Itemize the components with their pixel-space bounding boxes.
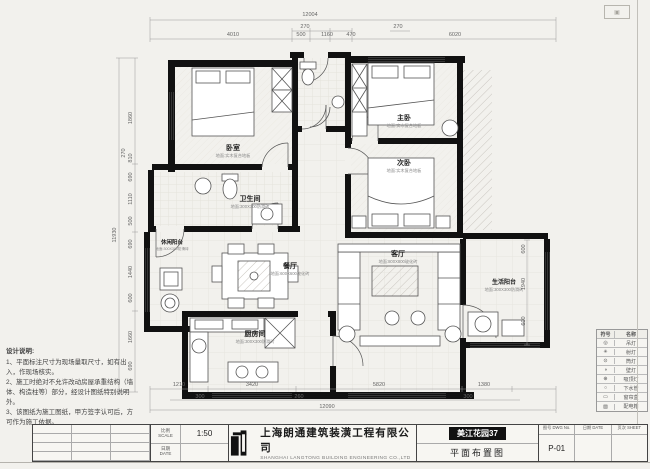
company-name-cn: 上海朗通建筑装潢工程有限公司 bbox=[260, 425, 416, 455]
corner-stamp: ▣ bbox=[604, 5, 630, 19]
legend-row: ⊙筒灯 bbox=[597, 357, 647, 366]
svg-text:470: 470 bbox=[346, 32, 355, 38]
legend-row: ○下水管 bbox=[597, 384, 647, 393]
drawing-sheet: 卧室 地面:实木复合地板 主卧 地面:实木复合地板 次卧 地面:实木复合地板 卫… bbox=[0, 0, 650, 469]
legend-symbol-icon: ⊙ bbox=[597, 358, 615, 364]
dwgno-label-cn: 图号 bbox=[543, 425, 551, 430]
sheet-label-cn: 页次 bbox=[618, 425, 626, 430]
svg-text:地面:300X300防滑砖: 地面:300X300防滑砖 bbox=[231, 203, 270, 210]
svg-text:地面:300X300防滑砖: 地面:300X300防滑砖 bbox=[485, 286, 524, 293]
svg-text:600: 600 bbox=[521, 244, 527, 253]
svg-text:300: 300 bbox=[463, 394, 472, 400]
svg-text:地面:300X300防滑砖: 地面:300X300防滑砖 bbox=[236, 338, 275, 345]
room-label-dining: 餐厅 bbox=[282, 261, 297, 270]
svg-text:270: 270 bbox=[393, 24, 402, 30]
dwgno-label-en: DWG No. bbox=[552, 425, 570, 430]
company-name-en: SHANGHAI LANGTONG BUILDING ENGINEERING C… bbox=[260, 456, 416, 461]
room-label-service: 生活阳台 bbox=[492, 278, 516, 286]
svg-text:5820: 5820 bbox=[373, 382, 385, 388]
design-notes-title: 设计说明: bbox=[6, 347, 134, 357]
legend-row: ⊕吸顶灯 bbox=[597, 375, 647, 384]
legend-row: ▨配电箱 bbox=[597, 402, 647, 411]
sheet-edge-line bbox=[637, 0, 638, 424]
dim-left-overall: 11930 bbox=[112, 228, 118, 243]
legend-symbol-icon: ○ bbox=[597, 385, 615, 391]
drawing-title: 平面布置图 bbox=[417, 444, 538, 462]
bed-bedroom bbox=[192, 68, 254, 136]
exterior-hatch bbox=[463, 70, 492, 230]
dim-top-overall: 12004 bbox=[302, 12, 317, 18]
room-label-second: 次卧 bbox=[397, 158, 411, 167]
svg-text:810: 810 bbox=[128, 153, 134, 162]
svg-text:6020: 6020 bbox=[449, 32, 461, 38]
svg-text:1440: 1440 bbox=[128, 266, 134, 278]
svg-text:260: 260 bbox=[294, 394, 303, 400]
svg-text:1860: 1860 bbox=[128, 112, 134, 124]
legend-symbol-icon: ⊕ bbox=[597, 376, 615, 382]
svg-text:地面:800X800玻化砖: 地面:800X800玻化砖 bbox=[379, 258, 418, 265]
svg-text:1160: 1160 bbox=[321, 32, 333, 38]
wardrobe-master bbox=[352, 64, 367, 136]
room-label-bath: 卫生间 bbox=[240, 194, 261, 203]
date-label-en: DATE bbox=[151, 452, 180, 457]
svg-text:1210: 1210 bbox=[173, 382, 185, 388]
design-note-line: 1、平面标注尺寸为现场量取尺寸，如有出入，作现场核实。 bbox=[6, 358, 134, 378]
svg-text:690: 690 bbox=[128, 172, 134, 181]
svg-text:地面:600X600玻化砖: 地面:600X600玻化砖 bbox=[271, 270, 310, 277]
scale-section: 比例 SCALE 1:50 日期 DATE bbox=[151, 425, 229, 461]
company-logo-icon bbox=[229, 430, 252, 456]
project-name: 美江花园37 bbox=[449, 427, 506, 440]
symbol-legend: 符号 名称 ◎吊灯 ✳射灯 ⊙筒灯 ◑壁灯 ⊕吸顶灯 ○下水管 ▭窗帘盒 ▨配电… bbox=[596, 329, 648, 412]
coffee-table bbox=[372, 266, 418, 296]
scale-value: 1:50 bbox=[181, 429, 228, 438]
revision-grid bbox=[33, 425, 151, 461]
company-section: 上海朗通建筑装潢工程有限公司 SHANGHAI LANGTONG BUILDIN… bbox=[229, 425, 417, 461]
legend-row: ◑壁灯 bbox=[597, 366, 647, 375]
svg-text:地面:实木复合地板: 地面:实木复合地板 bbox=[387, 122, 422, 129]
legend-row: ▭窗帘盒 bbox=[597, 393, 647, 402]
svg-text:600: 600 bbox=[128, 293, 134, 302]
room-label-leisure: 休闲阳台 bbox=[160, 238, 184, 246]
legend-row: ✳射灯 bbox=[597, 348, 647, 357]
design-notes: 设计说明: 1、平面标注尺寸为现场量取尺寸，如有出入，作现场核实。 2、施工时绝… bbox=[6, 347, 134, 429]
svg-text:270: 270 bbox=[300, 24, 309, 30]
svg-text:地面:实木复合地板: 地面:实木复合地板 bbox=[216, 152, 251, 159]
room-label-kitchen: 厨房间 bbox=[245, 329, 266, 338]
svg-text:600: 600 bbox=[521, 316, 527, 325]
room-label-living: 客厅 bbox=[390, 249, 405, 258]
dining-table bbox=[212, 244, 298, 308]
svg-text:地面:300X300防滑砖: 地面:300X300防滑砖 bbox=[155, 246, 189, 251]
svg-text:690: 690 bbox=[128, 239, 134, 248]
sheet-label-en: SHEET bbox=[627, 425, 641, 430]
leisure-furniture bbox=[160, 268, 182, 312]
design-note-line: 2、施工时绝对不允许改动房屋承重结构（墙体、构造柱等）部分，经设计图纸特别说明外… bbox=[6, 378, 134, 408]
svg-text:1940: 1940 bbox=[521, 278, 527, 290]
legend-row: ◎吊灯 bbox=[597, 339, 647, 348]
legend-symbol-icon: ▨ bbox=[597, 404, 615, 410]
svg-text:300: 300 bbox=[195, 394, 204, 400]
room-label-bedroom: 卧室 bbox=[226, 143, 240, 152]
legend-symbol-icon: ▭ bbox=[597, 394, 615, 400]
legend-symbol-icon: ◑ bbox=[597, 367, 615, 373]
dim-bottom-overall: 12090 bbox=[319, 404, 334, 410]
legend-symbol-icon: ◎ bbox=[597, 340, 615, 346]
svg-text:1110: 1110 bbox=[128, 193, 134, 204]
title-block: 比例 SCALE 1:50 日期 DATE 上海朗通建筑装潢工程有限公司 SHA… bbox=[32, 424, 648, 462]
svg-text:500: 500 bbox=[128, 216, 134, 225]
svg-text:3420: 3420 bbox=[246, 382, 258, 388]
svg-text:1660: 1660 bbox=[128, 331, 134, 343]
number-section: 图号 DWG No. P-01 日期 DATE 页次 SHEET bbox=[539, 425, 647, 461]
legend-header: 符号 名称 bbox=[597, 330, 647, 339]
svg-text:500: 500 bbox=[296, 32, 305, 38]
room-label-master: 主卧 bbox=[397, 113, 411, 122]
wardrobe-bedroom bbox=[272, 68, 292, 112]
drawing-number: P-01 bbox=[539, 435, 574, 461]
svg-text:地面:实木复合地板: 地面:实木复合地板 bbox=[387, 167, 422, 174]
sheet-bottom-line bbox=[0, 462, 650, 463]
svg-text:270: 270 bbox=[121, 148, 127, 157]
chair-master bbox=[442, 120, 458, 136]
svg-text:4010: 4010 bbox=[227, 32, 239, 38]
legend-symbol-icon: ✳ bbox=[597, 349, 615, 355]
scale-label-en: SCALE bbox=[151, 434, 180, 439]
svg-text:1380: 1380 bbox=[478, 382, 490, 388]
project-section: 美江花园37 平面布置图 bbox=[417, 425, 539, 461]
